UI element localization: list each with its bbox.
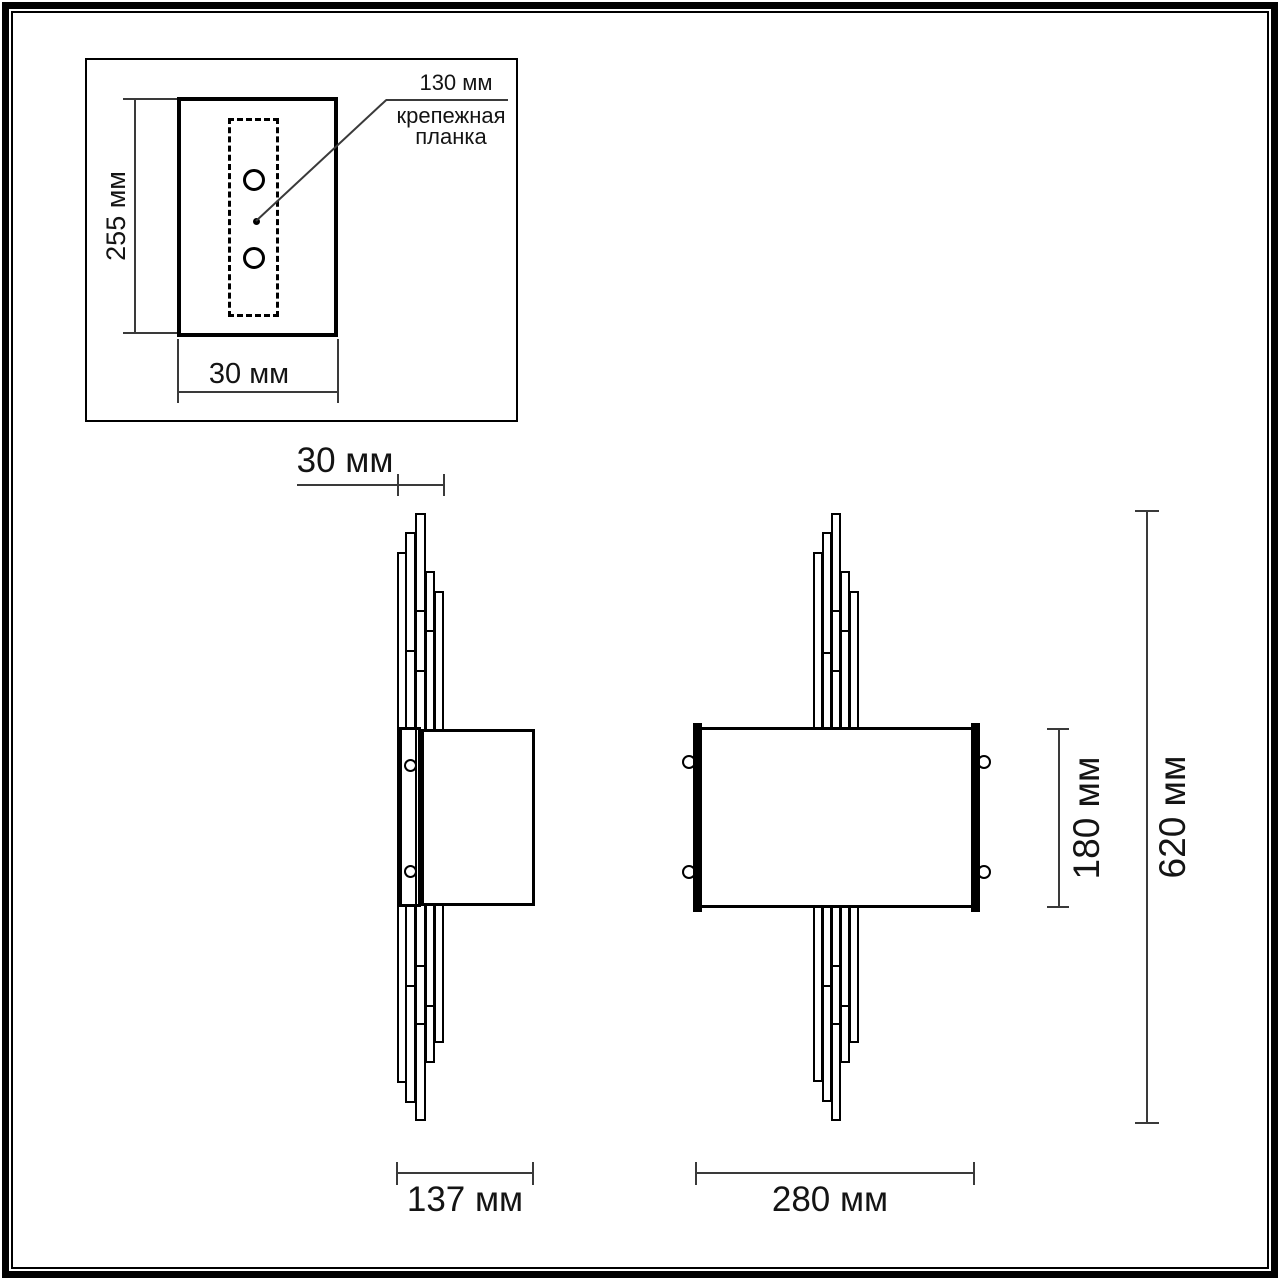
dim-280-line: [696, 1172, 974, 1174]
side-screw-bottom: [404, 865, 417, 878]
front-shade-left-bar: [693, 723, 702, 912]
front-rod-joint: [822, 652, 832, 654]
front-shade-box: [693, 727, 980, 908]
dim-280-label: 280 мм: [720, 1180, 940, 1220]
dim-30-inset-extension-left: [177, 339, 179, 403]
dim-30-side-tick-right: [443, 474, 445, 496]
dim-255-extension-top: [123, 98, 177, 100]
front-rod-joint: [822, 985, 832, 987]
dim-30-side-tick-left: [397, 474, 399, 496]
side-rod-joint: [425, 630, 435, 632]
dim-30-side-label: 30 мм: [286, 441, 404, 481]
side-rod-joint: [415, 610, 426, 612]
side-rod-joint: [415, 965, 426, 967]
side-screw-top: [404, 759, 417, 772]
dim-620-line: [1146, 511, 1148, 1123]
dim-30-inset-extension-right: [337, 339, 339, 403]
side-shade-box: [421, 729, 535, 906]
inset-holes-distance-label: 130 мм: [396, 70, 516, 96]
bracket-label-line2: планка: [386, 126, 516, 148]
front-rod-joint: [840, 630, 850, 632]
dim-137-line: [397, 1172, 533, 1174]
dim-30-side-line: [297, 484, 445, 486]
front-rod-joint: [831, 670, 841, 672]
dim-137-label: 137 мм: [395, 1180, 535, 1220]
mounting-bracket-dashed-rect: [228, 118, 279, 317]
dim-620-label: 620 мм: [1153, 717, 1193, 917]
dim-255-label: 255 мм: [96, 116, 136, 316]
front-shade-right-bar: [971, 723, 980, 912]
front-rod-joint: [840, 1005, 850, 1007]
side-wall-plate-inner-line: [415, 730, 417, 904]
side-rod-joint: [415, 1023, 426, 1025]
front-rod-joint: [831, 965, 841, 967]
side-rod-joint: [415, 670, 426, 672]
mounting-hole-bottom: [243, 247, 265, 269]
dim-255-extension-bottom: [123, 332, 177, 334]
mounting-hole-top: [243, 169, 265, 191]
side-rod-joint: [405, 985, 416, 987]
side-rod-joint: [405, 650, 416, 652]
dim-180-label: 180 мм: [1067, 718, 1107, 918]
front-rod-joint: [831, 1023, 841, 1025]
dim-180-line: [1058, 729, 1060, 907]
leader-horizontal-line: [386, 99, 508, 101]
technical-drawing-canvas: 130 мм крепежная планка 255 мм 30 мм 30 …: [0, 0, 1280, 1280]
dim-30-inset-line: [178, 391, 338, 393]
side-rod-joint: [425, 1005, 435, 1007]
front-rod-joint: [831, 610, 841, 612]
side-wall-plate: [399, 727, 421, 907]
dim-30-inset-label: 30 мм: [189, 358, 309, 391]
